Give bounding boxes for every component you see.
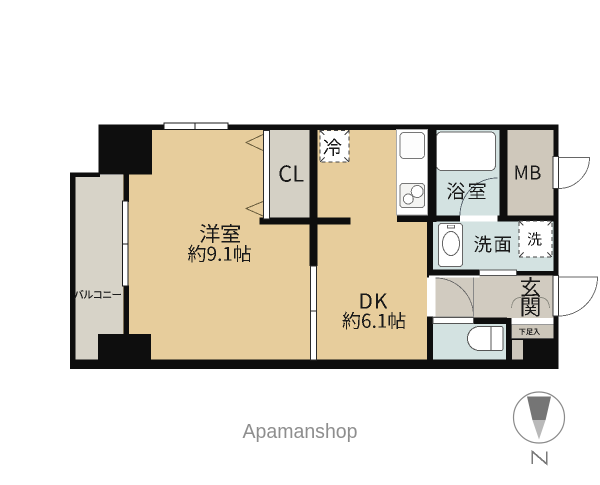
svg-text:Apamanshop: Apamanshop [243,420,358,443]
